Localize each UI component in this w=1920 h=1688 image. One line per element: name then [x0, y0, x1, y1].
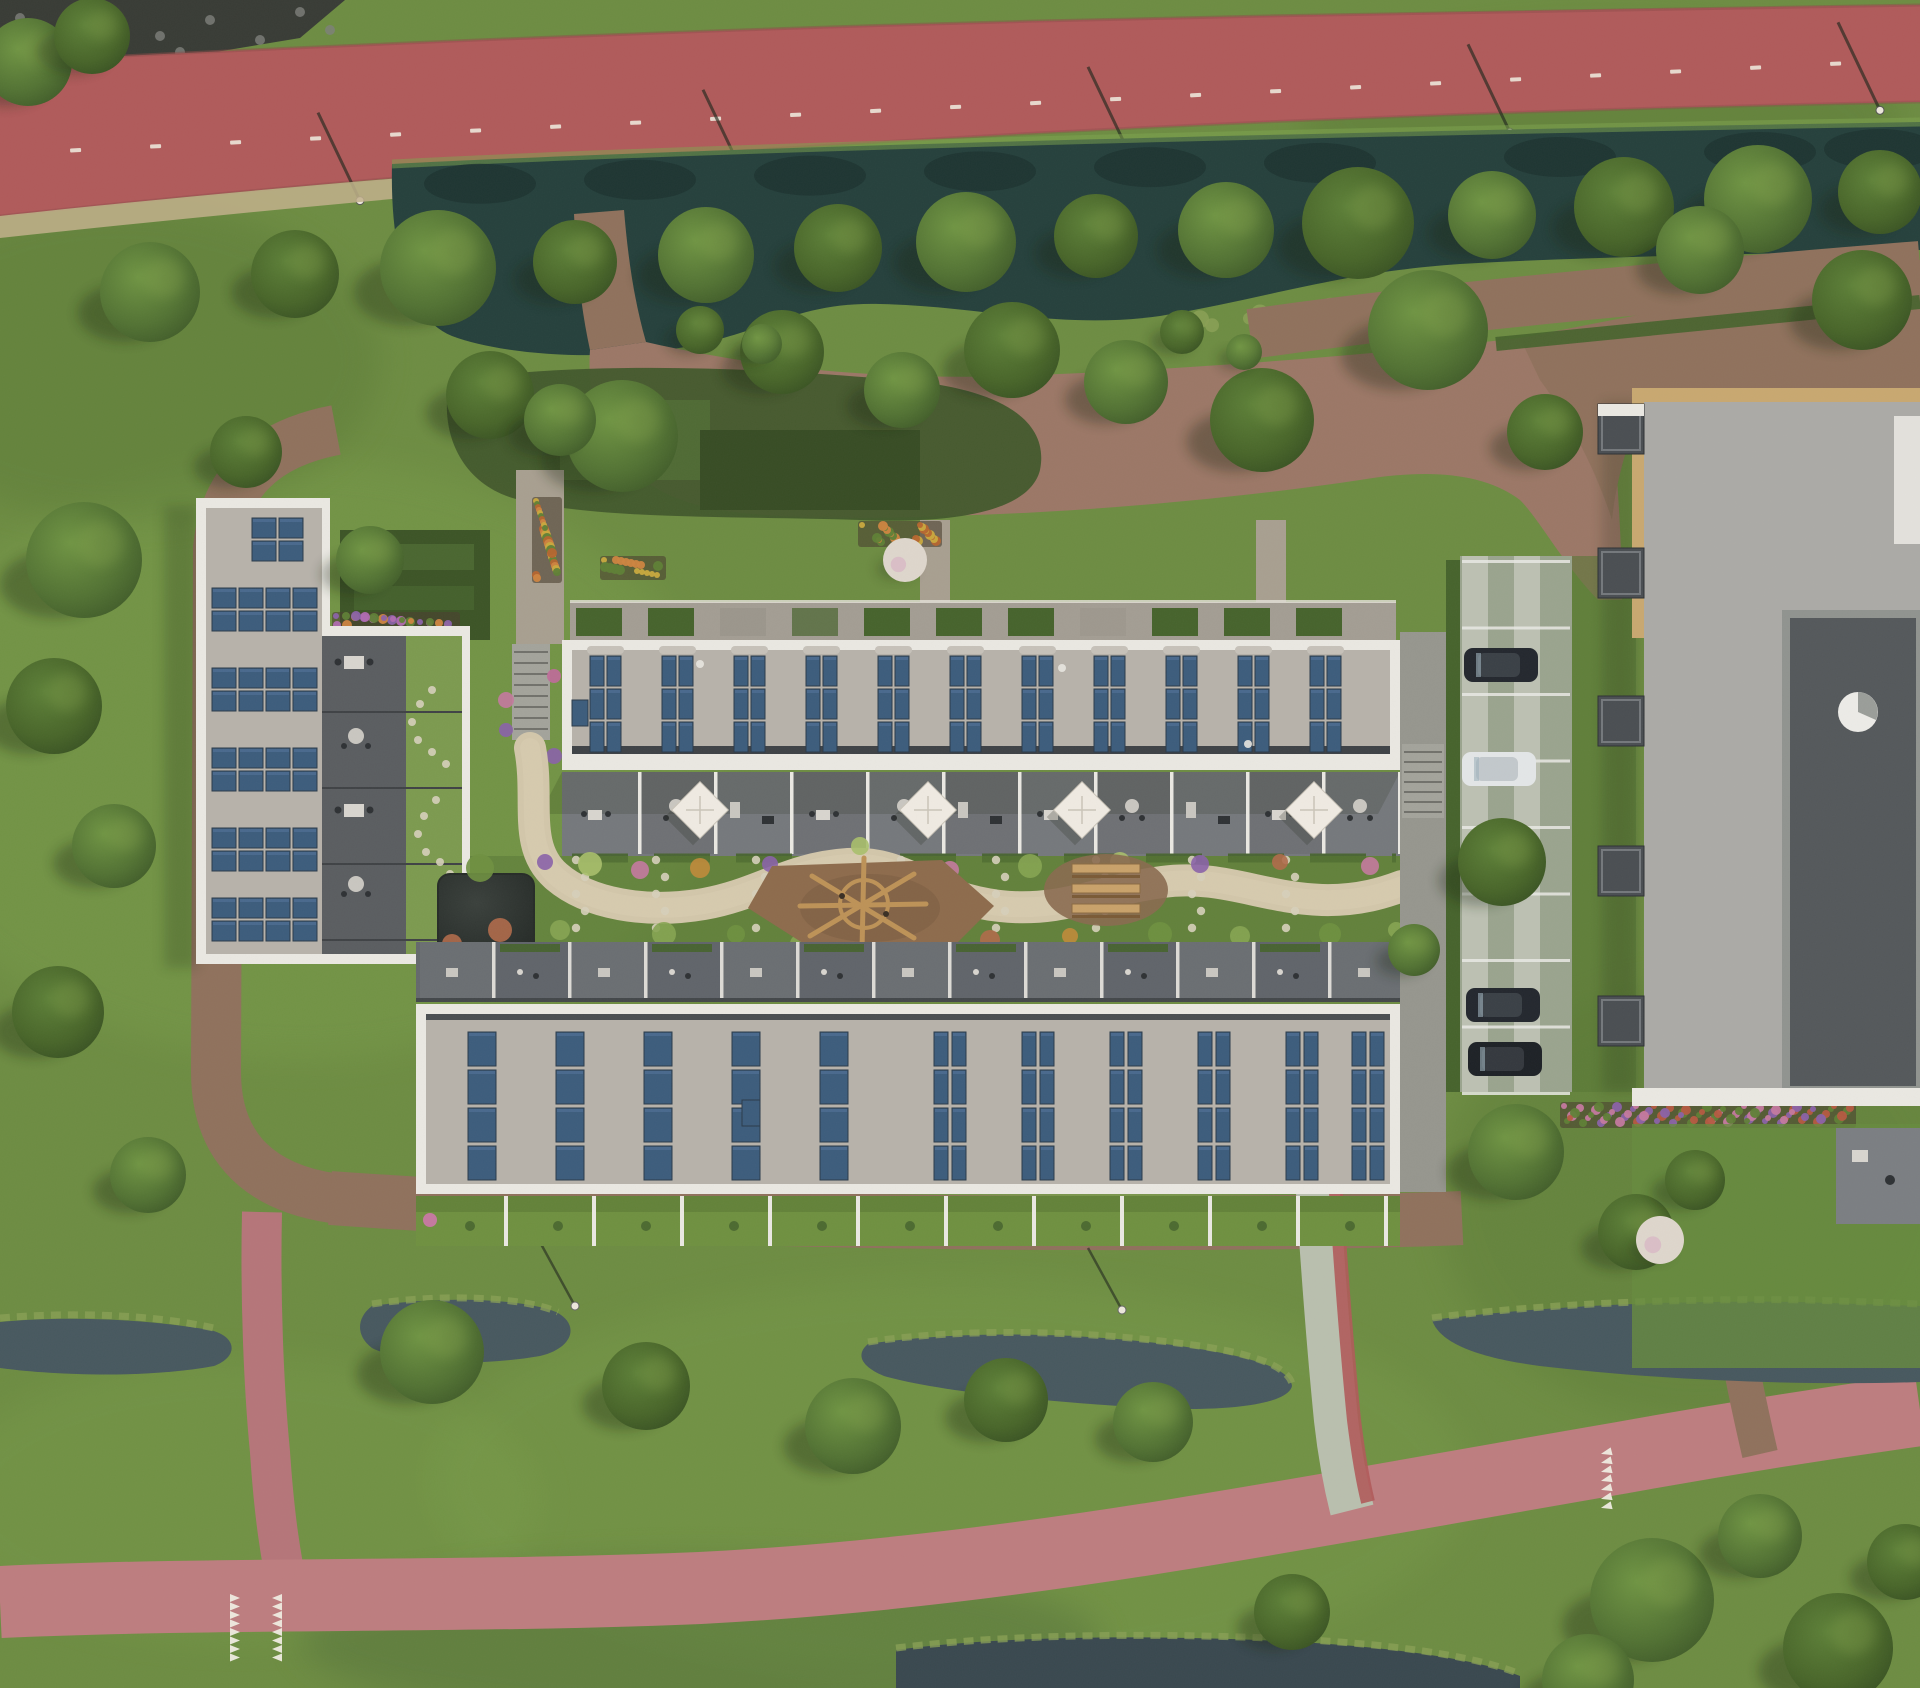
photo-grain-overlay [0, 0, 1920, 1688]
aerial-scene [0, 0, 1920, 1688]
aerial-site-render [0, 0, 1920, 1688]
